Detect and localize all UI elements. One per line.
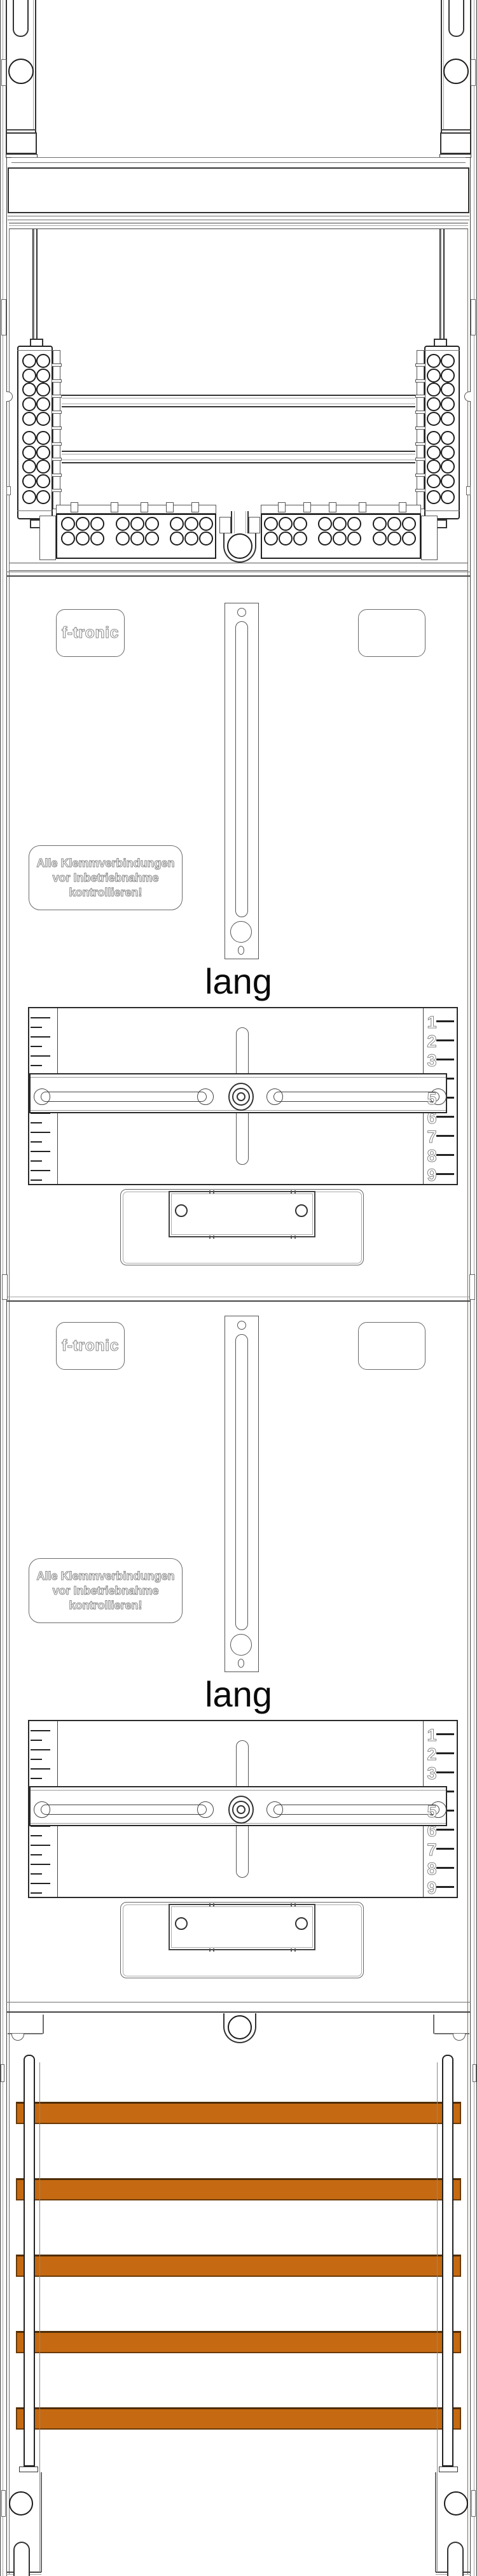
strip-end-plate	[39, 516, 56, 560]
crossmember-line	[8, 216, 469, 216]
scale-number-tick	[436, 1020, 454, 1022]
bracket-plate	[169, 1191, 315, 1237]
terminal-block-left	[17, 346, 53, 519]
rail-hole	[237, 608, 246, 617]
channel-slot	[13, 0, 29, 37]
scale-tick	[31, 1883, 50, 1884]
scale-number-tick	[436, 1867, 454, 1869]
scale-tick	[31, 1065, 42, 1066]
scale-tick	[31, 1864, 50, 1865]
step-notch	[11, 2034, 24, 2041]
scale-tick	[31, 1132, 50, 1133]
scale-tick	[31, 1170, 50, 1171]
scale-number-tick	[436, 1886, 454, 1888]
rod-inner-line	[441, 229, 442, 339]
crossmember-line	[8, 220, 469, 220]
rail-inner-wall	[39, 2062, 40, 2572]
edge-clip	[1, 59, 6, 86]
scale-number: 7	[422, 1840, 441, 1859]
scale-number-tick	[436, 1116, 454, 1118]
channel-step	[6, 129, 36, 130]
foot-slot	[13, 2542, 30, 2576]
scale-number: 1	[422, 1013, 441, 1032]
link-bar	[62, 395, 415, 407]
warning-label-text: Alle Klemmverbindungen vor Inbetriebnahm…	[36, 1569, 174, 1613]
bracket-hole	[295, 1204, 308, 1217]
meter-cabinet-drawing: f-tronic Alle Klemmverbindungen vor Inbe…	[0, 0, 477, 2576]
terminal-strip-right	[261, 514, 421, 559]
edge-clip	[466, 486, 471, 495]
busbar-support-rail-left	[24, 2055, 35, 2467]
mounting-bracket	[120, 1189, 364, 1265]
scale-number-tick	[436, 1771, 454, 1773]
link-bar-line	[62, 460, 415, 460]
rail-screw-hole	[230, 1634, 252, 1656]
edge-clip	[471, 59, 476, 86]
step-notch	[453, 2034, 466, 2041]
meter-field-2: f-tronic Alle Klemmverbindungen vor Inbe…	[0, 1289, 477, 2002]
rail-hole-small	[238, 946, 244, 955]
slot-bulb	[197, 1801, 214, 1818]
scale-tick	[31, 1854, 42, 1855]
bracket-tick	[209, 1235, 214, 1239]
edge-clip	[1, 299, 6, 335]
slide-knob-center	[237, 1805, 245, 1814]
busbar-support-rail-right	[442, 2055, 453, 2467]
scale-tick	[31, 1141, 42, 1143]
shelf-edge-line	[9, 223, 468, 223]
scale-tick	[31, 1122, 42, 1123]
adjustment-slide	[29, 1073, 447, 1113]
step-line	[433, 2015, 434, 2034]
divider-line	[6, 2011, 471, 2013]
adjustment-slide	[29, 1786, 447, 1826]
scale-number: 9	[422, 1165, 441, 1185]
bracket-tick	[209, 1190, 214, 1193]
rail-end-cap	[19, 2467, 38, 2472]
scale-tick	[31, 1845, 50, 1846]
edge-bump	[464, 391, 471, 402]
scale-number: 8	[422, 1146, 441, 1165]
step-line	[43, 2015, 44, 2034]
scale-number: 9	[422, 1878, 441, 1897]
block-line	[17, 510, 53, 511]
bracket-tick	[291, 1948, 296, 1952]
scale-tick	[31, 1027, 42, 1028]
scale-number: 3	[422, 1051, 441, 1070]
slot-bulb	[34, 1801, 50, 1818]
rail-screw-hole	[230, 921, 252, 943]
keyhole-side-tab	[249, 517, 260, 533]
mounting-bracket	[120, 1902, 364, 1978]
busbar	[16, 2331, 461, 2353]
foot-slot	[447, 2542, 464, 2576]
scale-number: 7	[422, 1127, 441, 1146]
slide-slot-right	[273, 1805, 439, 1815]
scale-tick	[31, 1179, 42, 1181]
bracket-hole	[295, 1917, 308, 1930]
brand-label-text: f-tronic	[62, 624, 119, 642]
busbar	[16, 2255, 461, 2277]
rail-slot	[235, 1334, 248, 1630]
rail-end-cap	[439, 2467, 458, 2472]
bottom-keyhole-circle	[228, 2015, 252, 2039]
brand-label: f-tronic	[56, 609, 125, 657]
warning-label: Alle Klemmverbindungen vor Inbetriebnahm…	[29, 1558, 183, 1623]
shelf	[10, 563, 467, 571]
busbar	[16, 2407, 461, 2430]
scale-number-tick	[436, 1135, 454, 1137]
foot-wall	[41, 2472, 42, 2572]
edge-clip	[471, 2490, 476, 2517]
scale-number-tick	[436, 1752, 454, 1754]
strip-end-plate	[421, 516, 438, 560]
scale-tick	[31, 1873, 42, 1875]
rod-inner-line	[34, 229, 35, 339]
block-line	[424, 510, 460, 511]
rail-inner-wall	[437, 2062, 438, 2572]
busbar	[16, 2178, 461, 2200]
edge-clip	[473, 2064, 476, 2082]
scale-tick	[31, 1055, 50, 1057]
crossmember-line	[11, 162, 466, 163]
bracket-hole	[175, 1917, 188, 1930]
divider-line	[6, 2002, 471, 2002]
scale-tick	[31, 1017, 50, 1018]
edge-clip	[6, 486, 11, 495]
slot-bulb	[266, 1088, 283, 1105]
scale-number-tick	[436, 1848, 454, 1850]
scale-number-tick	[436, 1829, 454, 1831]
scale-tick	[31, 1036, 50, 1038]
keyhole-neck-line	[245, 511, 246, 533]
edge-clip	[469, 1274, 475, 1300]
channel-hole	[443, 59, 469, 84]
warning-label-text: Alle Klemmverbindungen vor Inbetriebnahm…	[36, 856, 174, 900]
blank-label	[358, 609, 425, 657]
bracket-plate	[169, 1904, 315, 1950]
bracket-tick	[291, 1903, 296, 1906]
scale-tick	[31, 1740, 42, 1741]
tab-rail-left	[53, 350, 60, 509]
block-line	[424, 350, 460, 351]
scale-number: 2	[422, 1032, 441, 1051]
busbar	[16, 2102, 461, 2124]
bracket-tick	[209, 1903, 214, 1906]
link-bar-line	[62, 454, 415, 454]
keyhole-side-tab	[219, 517, 231, 533]
suspension-rod-right	[439, 229, 445, 339]
rail-hole	[237, 1321, 246, 1330]
channel-inner-line	[33, 0, 34, 129]
slide-slot-left	[41, 1805, 207, 1815]
crossmember-line	[11, 157, 466, 158]
scale-number: 5	[422, 1089, 441, 1108]
scale-tick	[31, 1730, 50, 1731]
scale-number: 3	[422, 1764, 441, 1783]
block-line	[17, 350, 53, 351]
size-label: lang	[175, 1675, 302, 1714]
scale-tick	[31, 1759, 42, 1760]
channel-base	[6, 132, 37, 154]
slide-line	[31, 1077, 446, 1078]
top-crossmember	[8, 167, 469, 213]
strip-top-rail-left	[56, 505, 216, 514]
center-mounting-rail	[225, 603, 259, 959]
suspension-rod-left	[32, 229, 38, 339]
scale-number-tick	[436, 1154, 454, 1156]
scale-tick	[31, 1160, 42, 1162]
channel-step	[441, 129, 471, 130]
keyhole-neck-line	[234, 511, 235, 533]
edge-clip	[2, 1274, 8, 1300]
keyhole-circle	[227, 533, 252, 559]
edge-clip	[471, 299, 476, 335]
scale-number: 5	[422, 1802, 441, 1821]
center-mounting-rail	[225, 1316, 259, 1672]
slide-knob-center	[237, 1092, 245, 1101]
channel-inner-line	[443, 0, 444, 129]
rail-slot	[235, 621, 248, 917]
channel-base	[440, 132, 471, 154]
link-bar-line	[62, 404, 415, 404]
scale-number-tick	[436, 1173, 454, 1175]
terminal-strip-left	[56, 514, 216, 559]
scale-tick	[31, 1046, 42, 1047]
scale-tick	[31, 1778, 42, 1779]
bracket-tick	[291, 1235, 296, 1239]
divider-line	[6, 572, 471, 572]
scale-number: 2	[422, 1745, 441, 1764]
bracket-tick	[209, 1948, 214, 1952]
brand-label: f-tronic	[56, 1322, 125, 1370]
foot-wall	[435, 2472, 436, 2572]
edge-clip	[1, 2064, 4, 2082]
scale-number: 1	[422, 1726, 441, 1745]
rail-hole-small	[238, 1659, 244, 1668]
foot-hole	[444, 2491, 468, 2516]
foot-hole	[9, 2491, 33, 2516]
warning-label: Alle Klemmverbindungen vor Inbetriebnahm…	[29, 845, 183, 910]
terminal-block-right	[424, 346, 460, 519]
scale-tick	[31, 1892, 42, 1894]
slide-slot-left	[41, 1092, 207, 1102]
slot-bulb	[266, 1801, 283, 1818]
scale-number-tick	[436, 1733, 454, 1735]
tab-rail-right	[417, 350, 424, 509]
scale-tick	[31, 1749, 50, 1750]
strip-top-rail-right	[261, 505, 421, 514]
slot-bulb	[34, 1088, 50, 1105]
size-label: lang	[175, 962, 302, 1001]
bracket-hole	[175, 1204, 188, 1217]
scale-tick	[31, 1151, 50, 1152]
shelf-edge-line	[9, 229, 468, 229]
shelf-edge-line	[9, 225, 468, 226]
scale-number-tick	[436, 1039, 454, 1041]
slide-line	[31, 1790, 446, 1791]
scale-tick	[31, 1835, 42, 1836]
channel-slot	[448, 0, 464, 37]
link-bar-line	[62, 398, 415, 398]
edge-clip	[1, 2490, 6, 2517]
scale-tick	[31, 1768, 50, 1770]
channel-hole	[8, 59, 34, 84]
brand-label-text: f-tronic	[62, 1337, 119, 1355]
bracket-tick	[291, 1190, 296, 1193]
slot-bulb	[197, 1088, 214, 1105]
scale-number: 8	[422, 1859, 441, 1878]
slide-slot-right	[273, 1092, 439, 1102]
blank-label	[358, 1322, 425, 1370]
link-bar	[62, 451, 415, 463]
scale-number-tick	[436, 1059, 454, 1060]
edge-bump	[6, 391, 13, 402]
meter-field-1: f-tronic Alle Klemmverbindungen vor Inbe…	[0, 576, 477, 1289]
